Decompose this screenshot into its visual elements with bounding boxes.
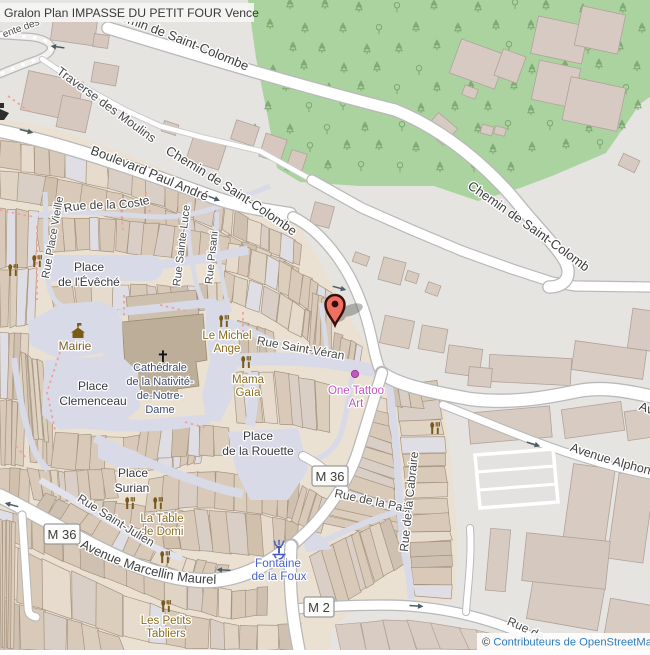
- svg-text:M 2: M 2: [308, 600, 330, 615]
- svg-text:© Contributeurs de OpenStreetM: © Contributeurs de OpenStreetMap: [482, 637, 650, 649]
- svg-text:Clemenceau: Clemenceau: [59, 394, 126, 408]
- svg-text:Place: Place: [78, 379, 108, 393]
- svg-text:Place: Place: [74, 260, 104, 274]
- svg-text:Mama: Mama: [232, 374, 265, 386]
- svg-text:Tabliers: Tabliers: [146, 628, 186, 640]
- svg-text:Place: Place: [118, 466, 148, 480]
- svg-text:One Tattoo: One Tattoo: [328, 385, 384, 397]
- svg-text:Gralon Plan IMPASSE DU PETIT F: Gralon Plan IMPASSE DU PETIT FOUR Vence: [4, 6, 259, 20]
- svg-text:Ange: Ange: [214, 343, 241, 355]
- svg-text:Place: Place: [243, 429, 273, 443]
- svg-text:Art: Art: [349, 398, 365, 410]
- svg-text:de-Notre-: de-Notre-: [137, 390, 184, 402]
- svg-text:La Table: La Table: [140, 513, 183, 525]
- svg-text:Fontaine: Fontaine: [255, 556, 301, 570]
- svg-text:de la Nativité-: de la Nativité-: [126, 376, 194, 388]
- svg-text:de l'Évêché: de l'Évêché: [58, 274, 120, 289]
- svg-text:Mairie: Mairie: [59, 339, 92, 353]
- svg-text:M 36: M 36: [48, 527, 77, 542]
- svg-text:de la Foux: de la Foux: [251, 569, 306, 583]
- svg-text:Dame: Dame: [145, 404, 174, 416]
- svg-text:Cathédrale: Cathédrale: [133, 362, 187, 374]
- svg-text:M 36: M 36: [316, 469, 345, 484]
- svg-text:Surian: Surian: [115, 481, 150, 495]
- svg-text:Les Petits: Les Petits: [141, 615, 192, 627]
- svg-text:de la Rouette: de la Rouette: [222, 444, 294, 458]
- svg-text:Gaïa: Gaïa: [236, 387, 262, 399]
- svg-text:Le Michel: Le Michel: [202, 330, 251, 342]
